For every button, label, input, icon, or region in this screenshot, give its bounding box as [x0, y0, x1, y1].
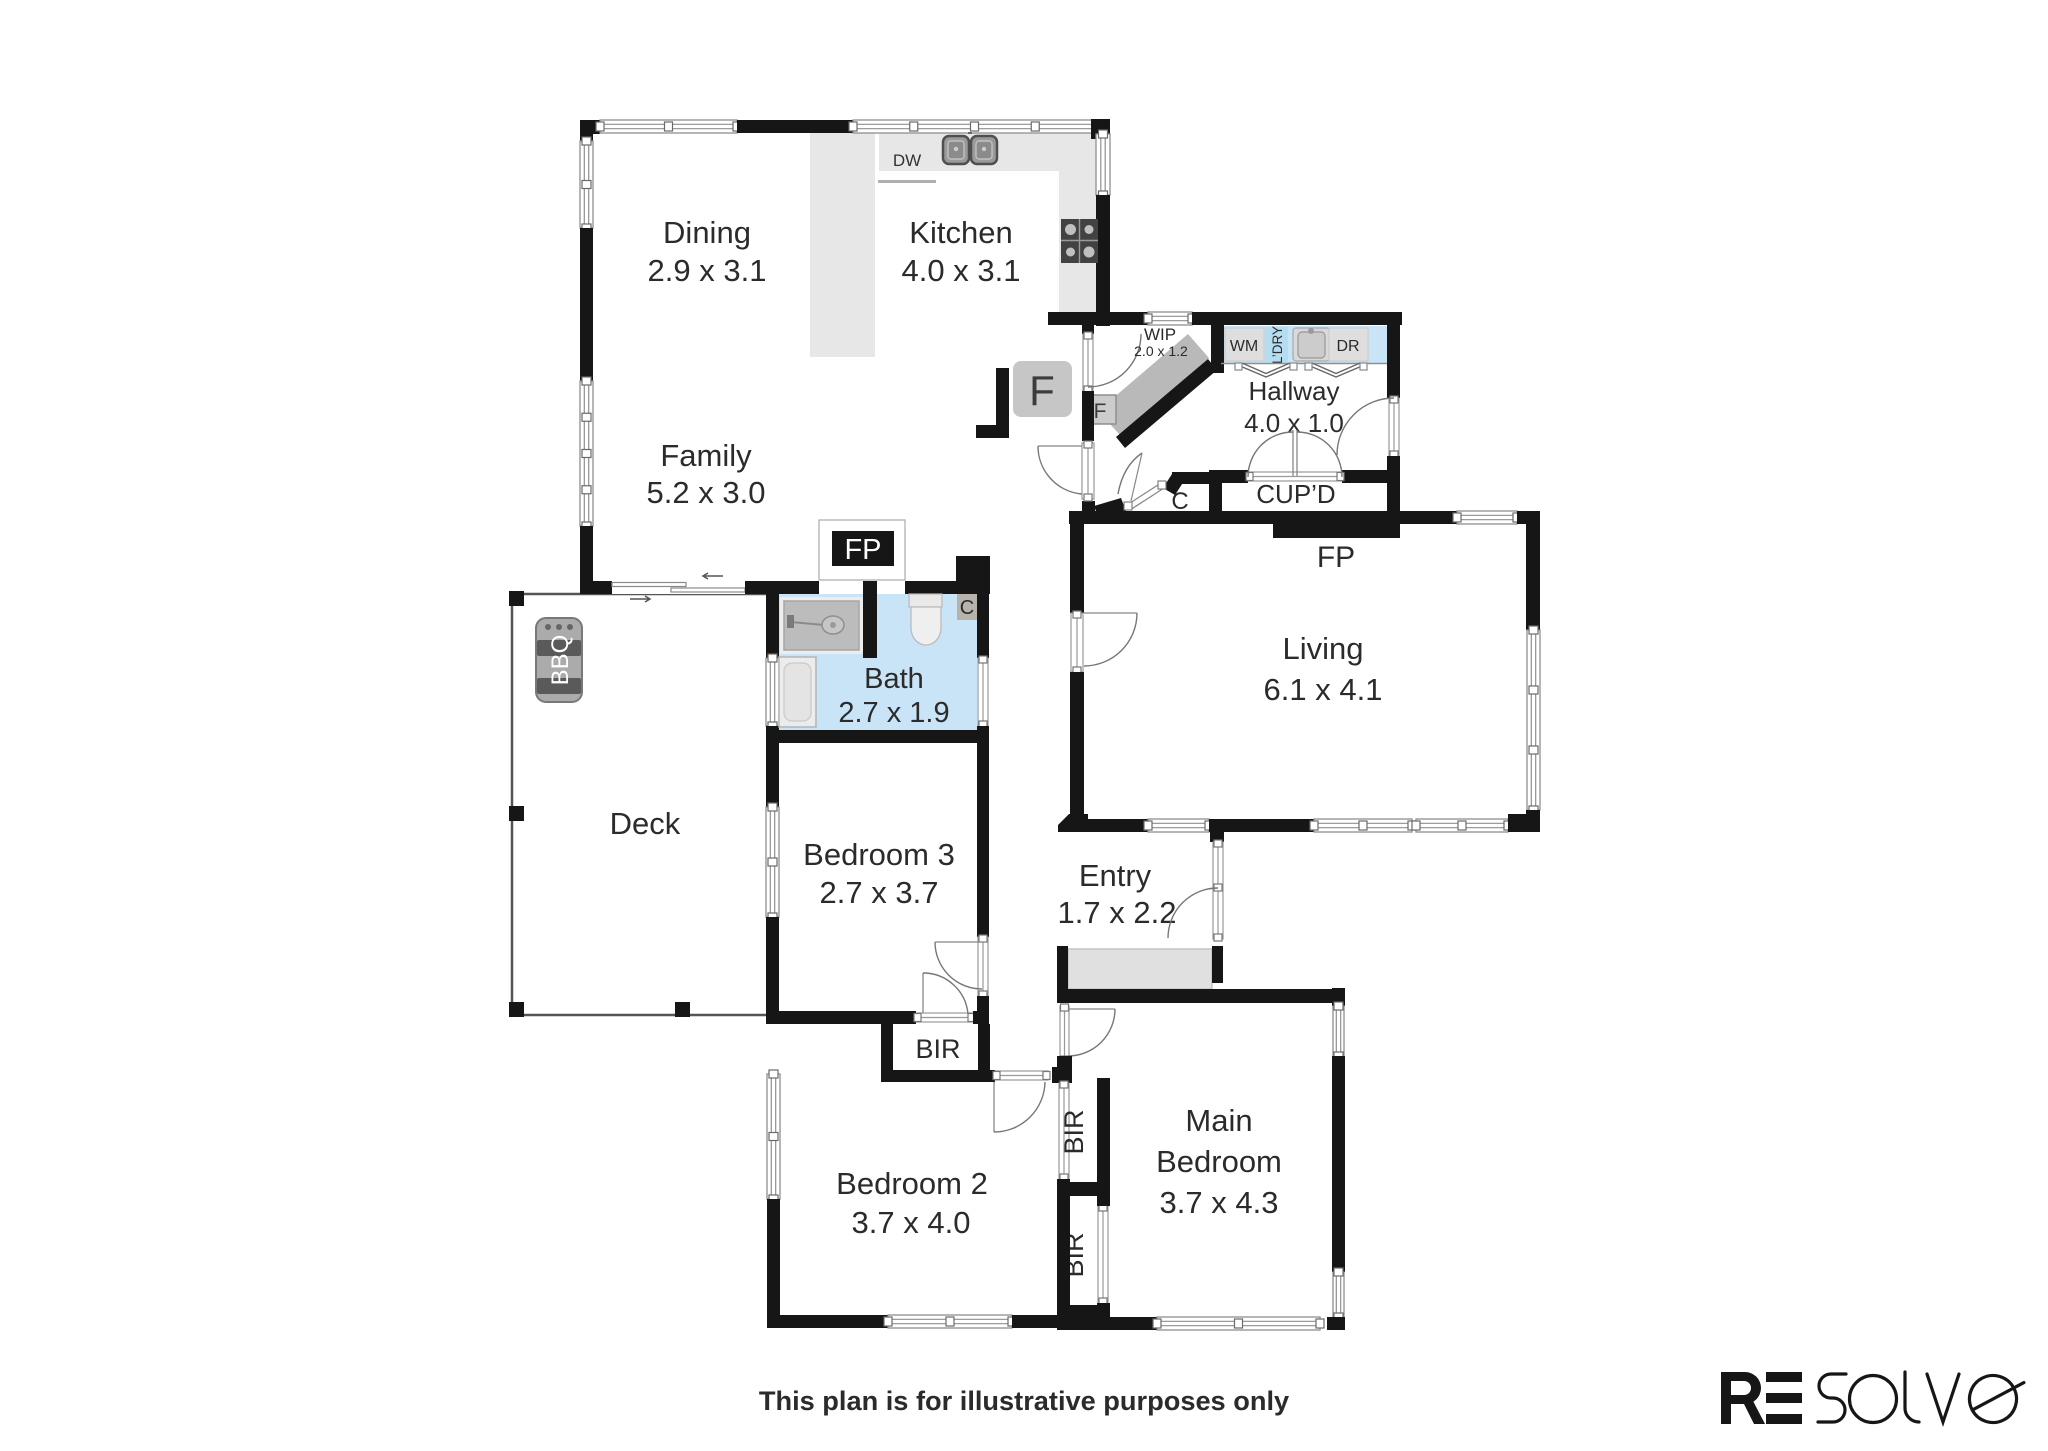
- svg-text:Bedroom 2: Bedroom 2: [836, 1166, 988, 1201]
- svg-text:2.0 x 1.2: 2.0 x 1.2: [1134, 343, 1188, 359]
- svg-text:Family: Family: [660, 438, 752, 473]
- svg-text:Living: Living: [1283, 631, 1364, 666]
- svg-text:3.7 x 4.3: 3.7 x 4.3: [1160, 1185, 1279, 1220]
- svg-text:F: F: [1029, 367, 1055, 414]
- svg-text:This plan is for illustrative: This plan is for illustrative purposes o…: [759, 1385, 1289, 1416]
- svg-text:4.0 x 3.1: 4.0 x 3.1: [902, 253, 1021, 288]
- svg-text:1.7 x 2.2: 1.7 x 2.2: [1058, 895, 1177, 930]
- svg-text:Dining: Dining: [663, 215, 751, 250]
- svg-text:Kitchen: Kitchen: [909, 215, 1012, 250]
- svg-text:DW: DW: [893, 151, 921, 170]
- svg-text:6.1 x 4.1: 6.1 x 4.1: [1264, 672, 1383, 707]
- svg-text:4.0 x 1.0: 4.0 x 1.0: [1244, 408, 1344, 438]
- svg-text:Entry: Entry: [1079, 858, 1152, 893]
- svg-text:Bedroom: Bedroom: [1156, 1144, 1282, 1179]
- svg-text:Main: Main: [1185, 1103, 1252, 1138]
- svg-text:WIP: WIP: [1144, 325, 1176, 344]
- svg-text:2.7 x 3.7: 2.7 x 3.7: [820, 875, 939, 910]
- svg-text:CUP’D: CUP’D: [1256, 479, 1335, 509]
- svg-text:C: C: [960, 597, 974, 619]
- svg-text:FP: FP: [1317, 541, 1355, 574]
- svg-text:BIR: BIR: [1059, 1109, 1089, 1154]
- svg-text:2.9 x 3.1: 2.9 x 3.1: [648, 253, 767, 288]
- svg-text:Deck: Deck: [610, 806, 681, 841]
- svg-text:BIR: BIR: [915, 1034, 960, 1064]
- svg-text:DR: DR: [1336, 338, 1359, 355]
- svg-text:Hallway: Hallway: [1248, 376, 1339, 406]
- svg-text:L’DRY: L’DRY: [1270, 326, 1285, 364]
- svg-text:WM: WM: [1230, 338, 1258, 355]
- svg-text:5.2 x 3.0: 5.2 x 3.0: [647, 475, 766, 510]
- svg-text:Bath: Bath: [864, 663, 924, 695]
- svg-text:3.7 x 4.0: 3.7 x 4.0: [852, 1205, 971, 1240]
- svg-text:F: F: [1094, 400, 1107, 423]
- svg-text:BBQ: BBQ: [547, 635, 574, 686]
- svg-text:FP: FP: [844, 534, 881, 566]
- svg-text:2.7 x 1.9: 2.7 x 1.9: [838, 697, 949, 729]
- svg-text:Bedroom 3: Bedroom 3: [803, 837, 955, 872]
